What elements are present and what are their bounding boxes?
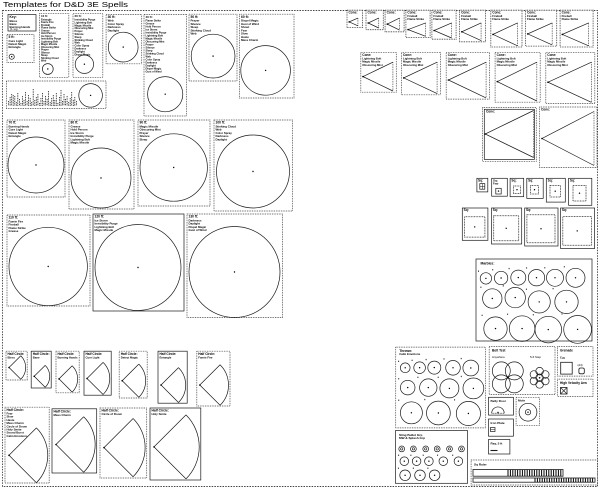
- svg-text:Flame Strike: Flame Strike: [461, 17, 478, 21]
- svg-text:Ray, 5 ft: Ray, 5 ft: [491, 442, 503, 446]
- svg-text:(d4): (d4): [578, 363, 583, 367]
- svg-text:Flame Strike: Flame Strike: [407, 17, 424, 21]
- svg-text:Sq Ruler: Sq Ruler: [474, 463, 488, 467]
- svg-text:Entangle: Entangle: [9, 134, 22, 138]
- svg-text:Obscuring Mist: Obscuring Mist: [448, 63, 468, 67]
- svg-text:Daylight: Daylight: [108, 28, 119, 32]
- svg-text:Gust of Wind: Gust of Wind: [189, 228, 207, 232]
- svg-text:5-ft Step: 5-ft Step: [530, 355, 541, 359]
- svg-text:Obscuring Mist: Obscuring Mist: [547, 63, 567, 67]
- svg-text:Flame Strike: Flame Strike: [492, 17, 509, 21]
- svg-text:Bless: Bless: [8, 355, 16, 359]
- svg-text:Mass Charm: Mass Charm: [54, 413, 72, 417]
- svg-text:Faerie Fire: Faerie Fire: [198, 355, 213, 359]
- svg-text:Circle of Doom: Circle of Doom: [102, 412, 123, 416]
- svg-text:Sq:: Sq:: [562, 208, 567, 212]
- svg-text:(1 sq): (1 sq): [10, 27, 18, 31]
- svg-text:Marbles:: Marbles:: [481, 262, 495, 266]
- svg-text:Cone:: Cone:: [349, 11, 358, 15]
- svg-text:High Velocity Arw: High Velocity Arw: [560, 381, 587, 385]
- svg-text:Mass Charm: Mass Charm: [241, 38, 259, 42]
- svg-text:Sleep: Sleep: [140, 137, 148, 141]
- svg-text:Flame Strike: Flame Strike: [562, 17, 579, 21]
- svg-text:Obscuring Mist: Obscuring Mist: [497, 63, 517, 67]
- svg-text:Entangle: Entangle: [160, 355, 172, 359]
- svg-text:Egg: Egg: [560, 356, 566, 360]
- svg-text:Sq:: Sq:: [526, 208, 531, 212]
- svg-text:Magic Missile: Magic Missile: [95, 228, 114, 232]
- svg-text:Grease: Grease: [9, 229, 19, 233]
- svg-text:Grenade: Grenade: [560, 349, 573, 353]
- svg-text:Daylight: Daylight: [216, 137, 227, 141]
- svg-text:Templates for D&D 3E Spells: Templates for D&D 3E Spells: [3, 0, 129, 9]
- svg-text:Web: Web: [41, 60, 47, 63]
- svg-text:Anywhere: Anywhere: [492, 355, 505, 359]
- svg-text:Calm Emotions: Calm Emotions: [399, 352, 420, 356]
- svg-text:Cure Light: Cure Light: [86, 355, 100, 359]
- svg-text:Sq:: Sq:: [511, 178, 516, 182]
- svg-text:Bane: Bane: [33, 355, 40, 359]
- svg-text:Sq:: Sq:: [493, 208, 498, 212]
- svg-text:Belly Door: Belly Door: [491, 399, 507, 403]
- svg-text:Burning Hands: Burning Hands: [58, 355, 78, 359]
- svg-text:Cone:: Cone:: [486, 110, 495, 114]
- svg-text:Cone:: Cone:: [541, 108, 550, 112]
- svg-text:Detect Magic: Detect Magic: [121, 355, 139, 359]
- svg-text:MW & Splash Grp: MW & Splash Grp: [399, 436, 425, 440]
- svg-text:Fear: Fear: [493, 182, 498, 186]
- svg-text:Sq:: Sq:: [548, 178, 553, 182]
- svg-text:Bolt Test: Bolt Test: [492, 349, 506, 353]
- svg-text:Sq:: Sq:: [528, 178, 533, 182]
- svg-text:Calm Emotions: Calm Emotions: [7, 434, 28, 438]
- svg-text:Sq:: Sq:: [464, 208, 469, 212]
- svg-text:Gust of Wind: Gust of Wind: [146, 69, 163, 73]
- svg-text:Obscuring Mist: Obscuring Mist: [362, 63, 382, 67]
- svg-text:Sq:: Sq:: [570, 178, 575, 182]
- svg-text:40 ft:: 40 ft:: [146, 15, 153, 19]
- svg-text:Cone:: Cone:: [368, 11, 377, 15]
- svg-text:Cone:: Cone:: [387, 11, 396, 15]
- svg-text:Magic Missile: Magic Missile: [71, 141, 90, 145]
- svg-text:Sq:: Sq:: [478, 178, 483, 182]
- svg-text:Entangle: Entangle: [9, 45, 22, 49]
- svg-text:Mole: Mole: [518, 399, 525, 403]
- svg-text:Obscuring Mist: Obscuring Mist: [403, 63, 423, 67]
- svg-text:Web: Web: [191, 32, 197, 36]
- svg-text:Holy Smite: Holy Smite: [152, 412, 167, 416]
- svg-text:Iron Plate: Iron Plate: [491, 421, 505, 425]
- svg-text:Flame Strike: Flame Strike: [433, 17, 450, 21]
- svg-text:Flame Strike: Flame Strike: [527, 17, 544, 21]
